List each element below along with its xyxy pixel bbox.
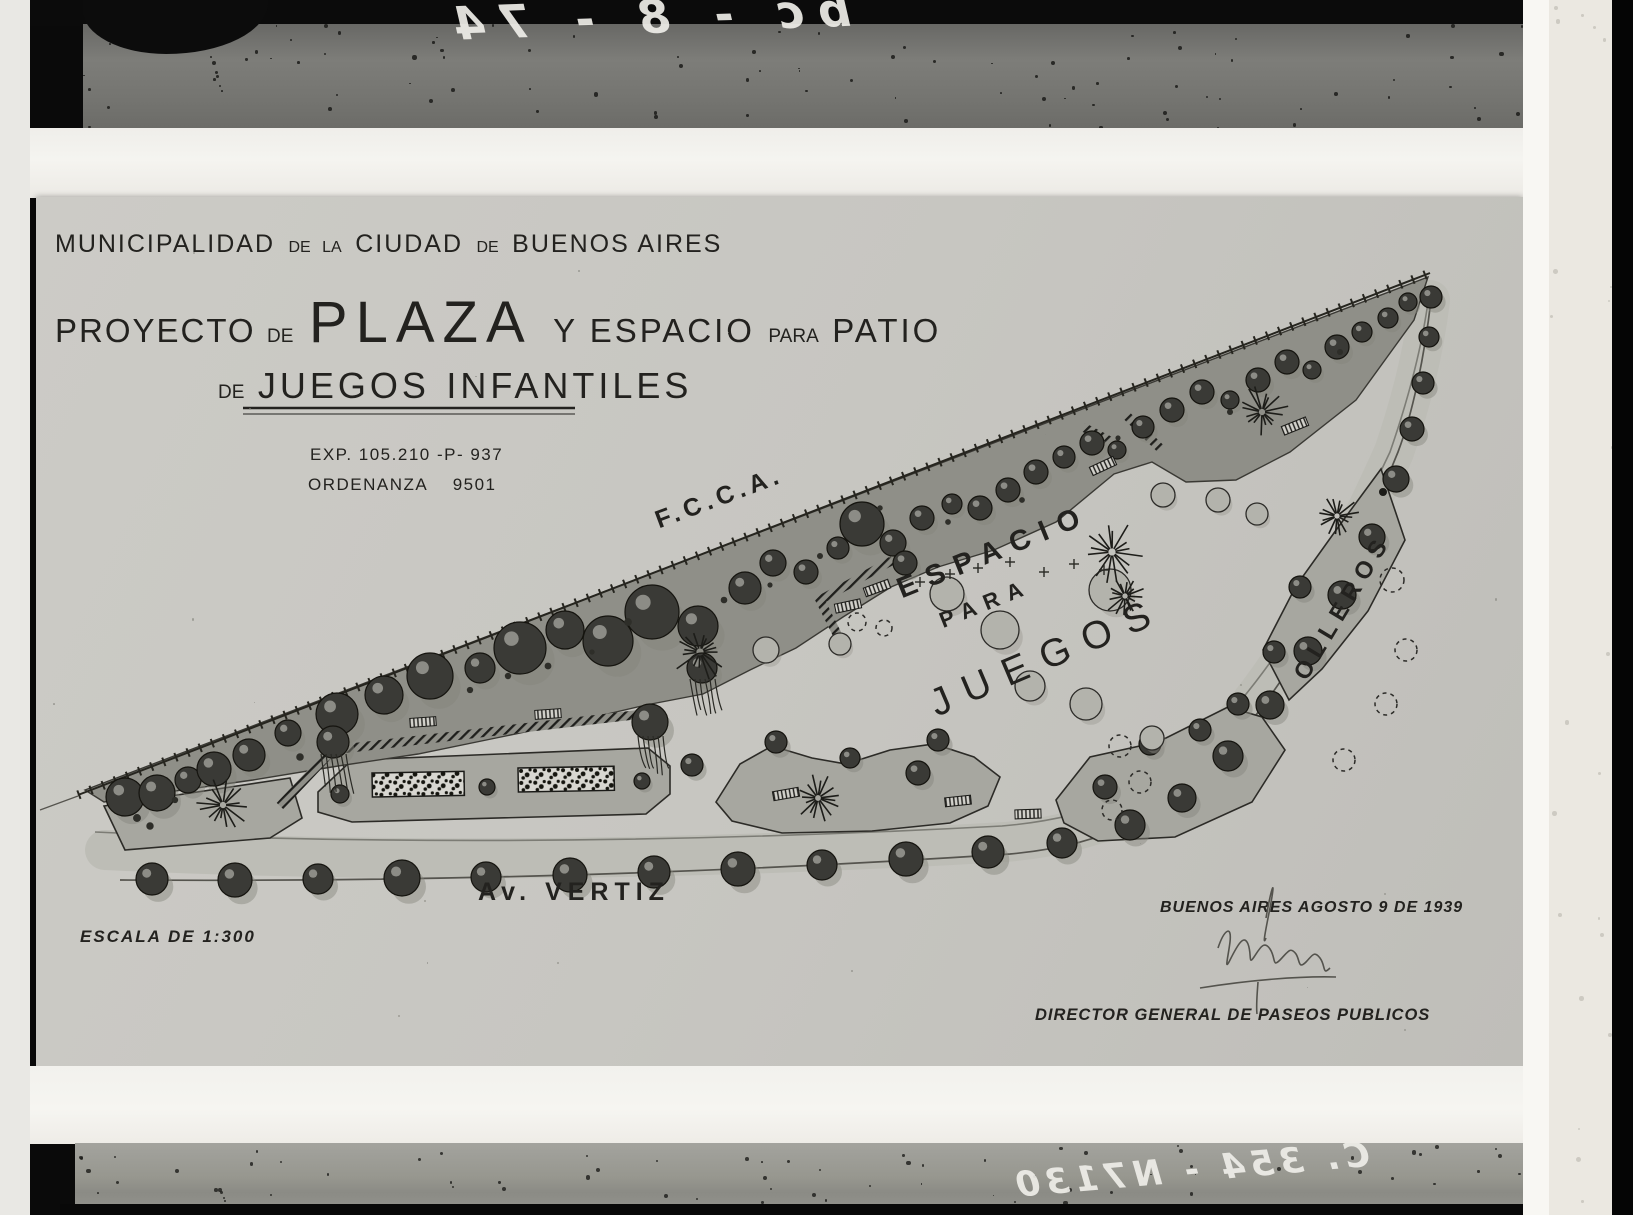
speckle: [193, 252, 195, 254]
speckle: [1388, 96, 1391, 99]
speckle: [1064, 98, 1066, 100]
speckle: [452, 1186, 454, 1188]
plaza-site-plan: MUNICIPALIDAD DE LA CIUDAD DE BUENOS AIR…: [36, 197, 1523, 1066]
speckle: [1051, 61, 1055, 65]
speckle: [1334, 92, 1338, 96]
speckle: [1608, 300, 1610, 302]
speckle: [338, 31, 342, 35]
speckle: [440, 1152, 443, 1155]
speckle: [825, 1199, 827, 1201]
speckle: [1593, 26, 1596, 29]
speckle: [819, 1169, 821, 1171]
speckle: [297, 61, 300, 64]
speckle: [1042, 97, 1046, 101]
vertiz-avenue-label: Av. VERTIZ: [478, 878, 670, 906]
speckle: [746, 114, 749, 117]
speckle: [763, 1176, 767, 1180]
speckle: [1550, 315, 1553, 318]
speckle: [993, 1195, 995, 1197]
speckle: [336, 94, 338, 96]
speckle: [1072, 86, 1076, 90]
speckle: [97, 1192, 99, 1194]
plate-white-border-bottom: [0, 1066, 1612, 1144]
project-subtitle: DE JUEGOS INFANTILES: [218, 365, 692, 406]
speckle: [88, 88, 91, 91]
municipality-title: MUNICIPALIDAD DE LA CIUDAD DE BUENOS AIR…: [55, 230, 722, 258]
speckle: [1516, 112, 1520, 116]
speckle: [53, 703, 55, 705]
plate-white-border-top: [0, 128, 1612, 198]
speckle: [1450, 56, 1454, 60]
speckle: [1406, 34, 1409, 37]
speckle: [327, 1173, 330, 1176]
scale-note: ESCALA DE 1:300: [80, 927, 256, 946]
speckle: [256, 1150, 258, 1152]
speckle: [324, 53, 326, 55]
speckle: [1215, 53, 1217, 55]
speckle: [86, 1169, 90, 1173]
speckle: [114, 1156, 116, 1158]
speckle: [498, 1181, 500, 1183]
file-number: EXP. 105.210 -P- 937: [310, 445, 503, 464]
speckle: [1059, 1147, 1063, 1151]
speckle: [1127, 57, 1130, 60]
speckle: [83, 75, 85, 77]
speckle: [984, 1159, 987, 1162]
speckle: [502, 1187, 506, 1191]
speckle: [745, 1157, 749, 1161]
speckle: [1412, 1150, 1416, 1154]
speckle: [1035, 75, 1038, 78]
speckle: [1166, 118, 1169, 121]
speckle: [1000, 92, 1002, 94]
speckle: [752, 50, 756, 54]
speckle: [594, 92, 598, 96]
speckle: [799, 70, 801, 72]
speckle: [1598, 917, 1601, 920]
speckle: [1565, 720, 1570, 725]
speckle: [1606, 652, 1610, 656]
speckle: [1477, 1170, 1479, 1172]
speckle: [116, 1181, 119, 1184]
speckle: [276, 25, 278, 27]
speckle: [696, 1198, 698, 1200]
speckle: [787, 1160, 790, 1163]
speckle: [1419, 1153, 1422, 1156]
speckle: [1477, 117, 1481, 121]
speckle: [586, 1155, 588, 1157]
photographed-plan-plate: bc - 8 - 74: [0, 0, 1633, 1215]
speckle: [1554, 6, 1558, 10]
speckle: [1556, 19, 1560, 23]
speckle: [869, 1185, 871, 1187]
speckle: [1393, 79, 1395, 81]
speckle: [219, 85, 221, 87]
speckle: [1581, 14, 1583, 16]
speckle: [418, 1158, 421, 1161]
speckle: [1576, 1157, 1581, 1162]
speckle: [677, 56, 679, 58]
speckle: [596, 1168, 600, 1172]
speckle: [1451, 24, 1455, 28]
speckle: [1175, 85, 1178, 88]
speckle: [324, 24, 328, 28]
speckle: [1049, 124, 1052, 127]
speckle: [1581, 1200, 1584, 1203]
speckle: [107, 106, 110, 109]
speckle: [1552, 811, 1557, 816]
speckle: [679, 64, 683, 68]
speckle: [1173, 31, 1176, 34]
speckle: [223, 1197, 225, 1199]
speckle: [1578, 1128, 1580, 1130]
speckle: [557, 962, 559, 964]
speckle: [1206, 96, 1208, 98]
speckle: [1499, 52, 1503, 56]
speckle: [805, 90, 808, 93]
speckle: [991, 63, 993, 65]
speckle: [245, 58, 247, 60]
speckle: [1300, 108, 1302, 110]
speckle: [1293, 123, 1296, 126]
speckle: [1553, 269, 1558, 274]
speckle: [1495, 1148, 1497, 1150]
railway-label: F.C.C.A.: [651, 461, 787, 534]
speckle: [451, 88, 455, 92]
speckle: [1163, 111, 1167, 115]
speckle: [586, 1175, 590, 1179]
speckle: [536, 110, 538, 112]
speckle: [1231, 59, 1233, 61]
speckle: [1433, 1183, 1435, 1185]
plate-black-strip-bottom: [60, 1204, 1633, 1215]
speckle: [1449, 86, 1451, 88]
speckle: [656, 1160, 658, 1162]
speckle: [761, 1161, 763, 1163]
speckle: [216, 75, 219, 78]
speckle: [80, 1157, 83, 1160]
tape-strip-inner: [1523, 0, 1549, 1215]
speckle: [280, 1161, 282, 1163]
speckle: [1603, 38, 1607, 42]
speckle: [906, 1161, 910, 1165]
ordinance: ORDENANZA 9501: [308, 475, 497, 494]
speckle: [270, 1194, 272, 1196]
speckle: [933, 60, 936, 63]
speckle: [409, 83, 411, 85]
speckle: [903, 46, 906, 49]
speckle: [1190, 1192, 1194, 1196]
wood-board-top: [83, 24, 1523, 128]
speckle: [1579, 996, 1584, 1001]
tape-strip-outer: [1549, 0, 1612, 1215]
speckle: [1474, 107, 1476, 109]
drawing-paper: MUNICIPALIDAD DE LA CIUDAD DE BUENOS AIR…: [36, 197, 1523, 1066]
speckle: [1177, 1145, 1179, 1147]
speckle: [664, 1194, 668, 1198]
speckle: [1518, 1173, 1520, 1175]
speckle: [175, 1169, 179, 1173]
speckle: [1558, 913, 1562, 917]
speckle: [1084, 1151, 1088, 1155]
speckle: [1495, 598, 1497, 600]
speckle: [450, 1181, 453, 1184]
speckle: [443, 56, 446, 59]
speckle: [812, 1193, 816, 1197]
speckle: [921, 1183, 923, 1185]
speckle: [904, 119, 908, 123]
speckle: [210, 56, 212, 58]
speckle: [412, 55, 416, 59]
speckle: [220, 1191, 223, 1194]
speckle: [1598, 772, 1602, 776]
speckle: [895, 97, 897, 99]
speckle: [1404, 1029, 1406, 1031]
date-line: BUENOS AIRES AGOSTO 9 DE 1939: [1160, 899, 1463, 916]
speckle: [429, 99, 433, 103]
speckle: [1131, 35, 1133, 37]
project-title: PROYECTO DE PLAZA Y ESPACIO PARA PATIO: [55, 290, 941, 355]
speckle: [1384, 893, 1386, 895]
speckle: [255, 50, 258, 53]
speckle: [250, 1162, 253, 1165]
plate-black-edge-right: [1612, 0, 1633, 1215]
speckle: [212, 61, 216, 65]
speckle: [891, 55, 895, 59]
speckle: [290, 39, 292, 41]
speckle: [1600, 933, 1605, 938]
speckle: [213, 78, 216, 81]
speckle: [1096, 82, 1099, 85]
speckle: [578, 270, 580, 272]
speckle: [221, 90, 223, 92]
plate-white-edge-left: [0, 0, 30, 1215]
speckle: [759, 70, 761, 72]
plan-graphics: [40, 273, 1446, 904]
speckle: [528, 49, 531, 52]
speckle: [902, 1154, 905, 1157]
speckle: [1391, 1177, 1394, 1180]
speckle: [850, 79, 853, 82]
speckle: [1235, 38, 1237, 40]
speckle: [1219, 98, 1221, 100]
speckle: [746, 78, 750, 82]
speckle: [328, 107, 332, 111]
speckle: [1498, 1154, 1502, 1158]
speckle: [215, 71, 218, 74]
speckle: [770, 1188, 772, 1190]
speckle: [270, 58, 272, 60]
speckle: [922, 1164, 925, 1167]
speckle: [654, 115, 658, 119]
signature-title: DIRECTOR GENERAL DE PASEOS PUBLICOS: [1035, 1006, 1430, 1024]
speckle: [1092, 104, 1095, 107]
speckle: [475, 376, 476, 377]
speckle: [224, 1200, 226, 1202]
speckle: [1435, 1145, 1439, 1149]
speckle: [529, 88, 531, 90]
speckle: [1178, 46, 1182, 50]
